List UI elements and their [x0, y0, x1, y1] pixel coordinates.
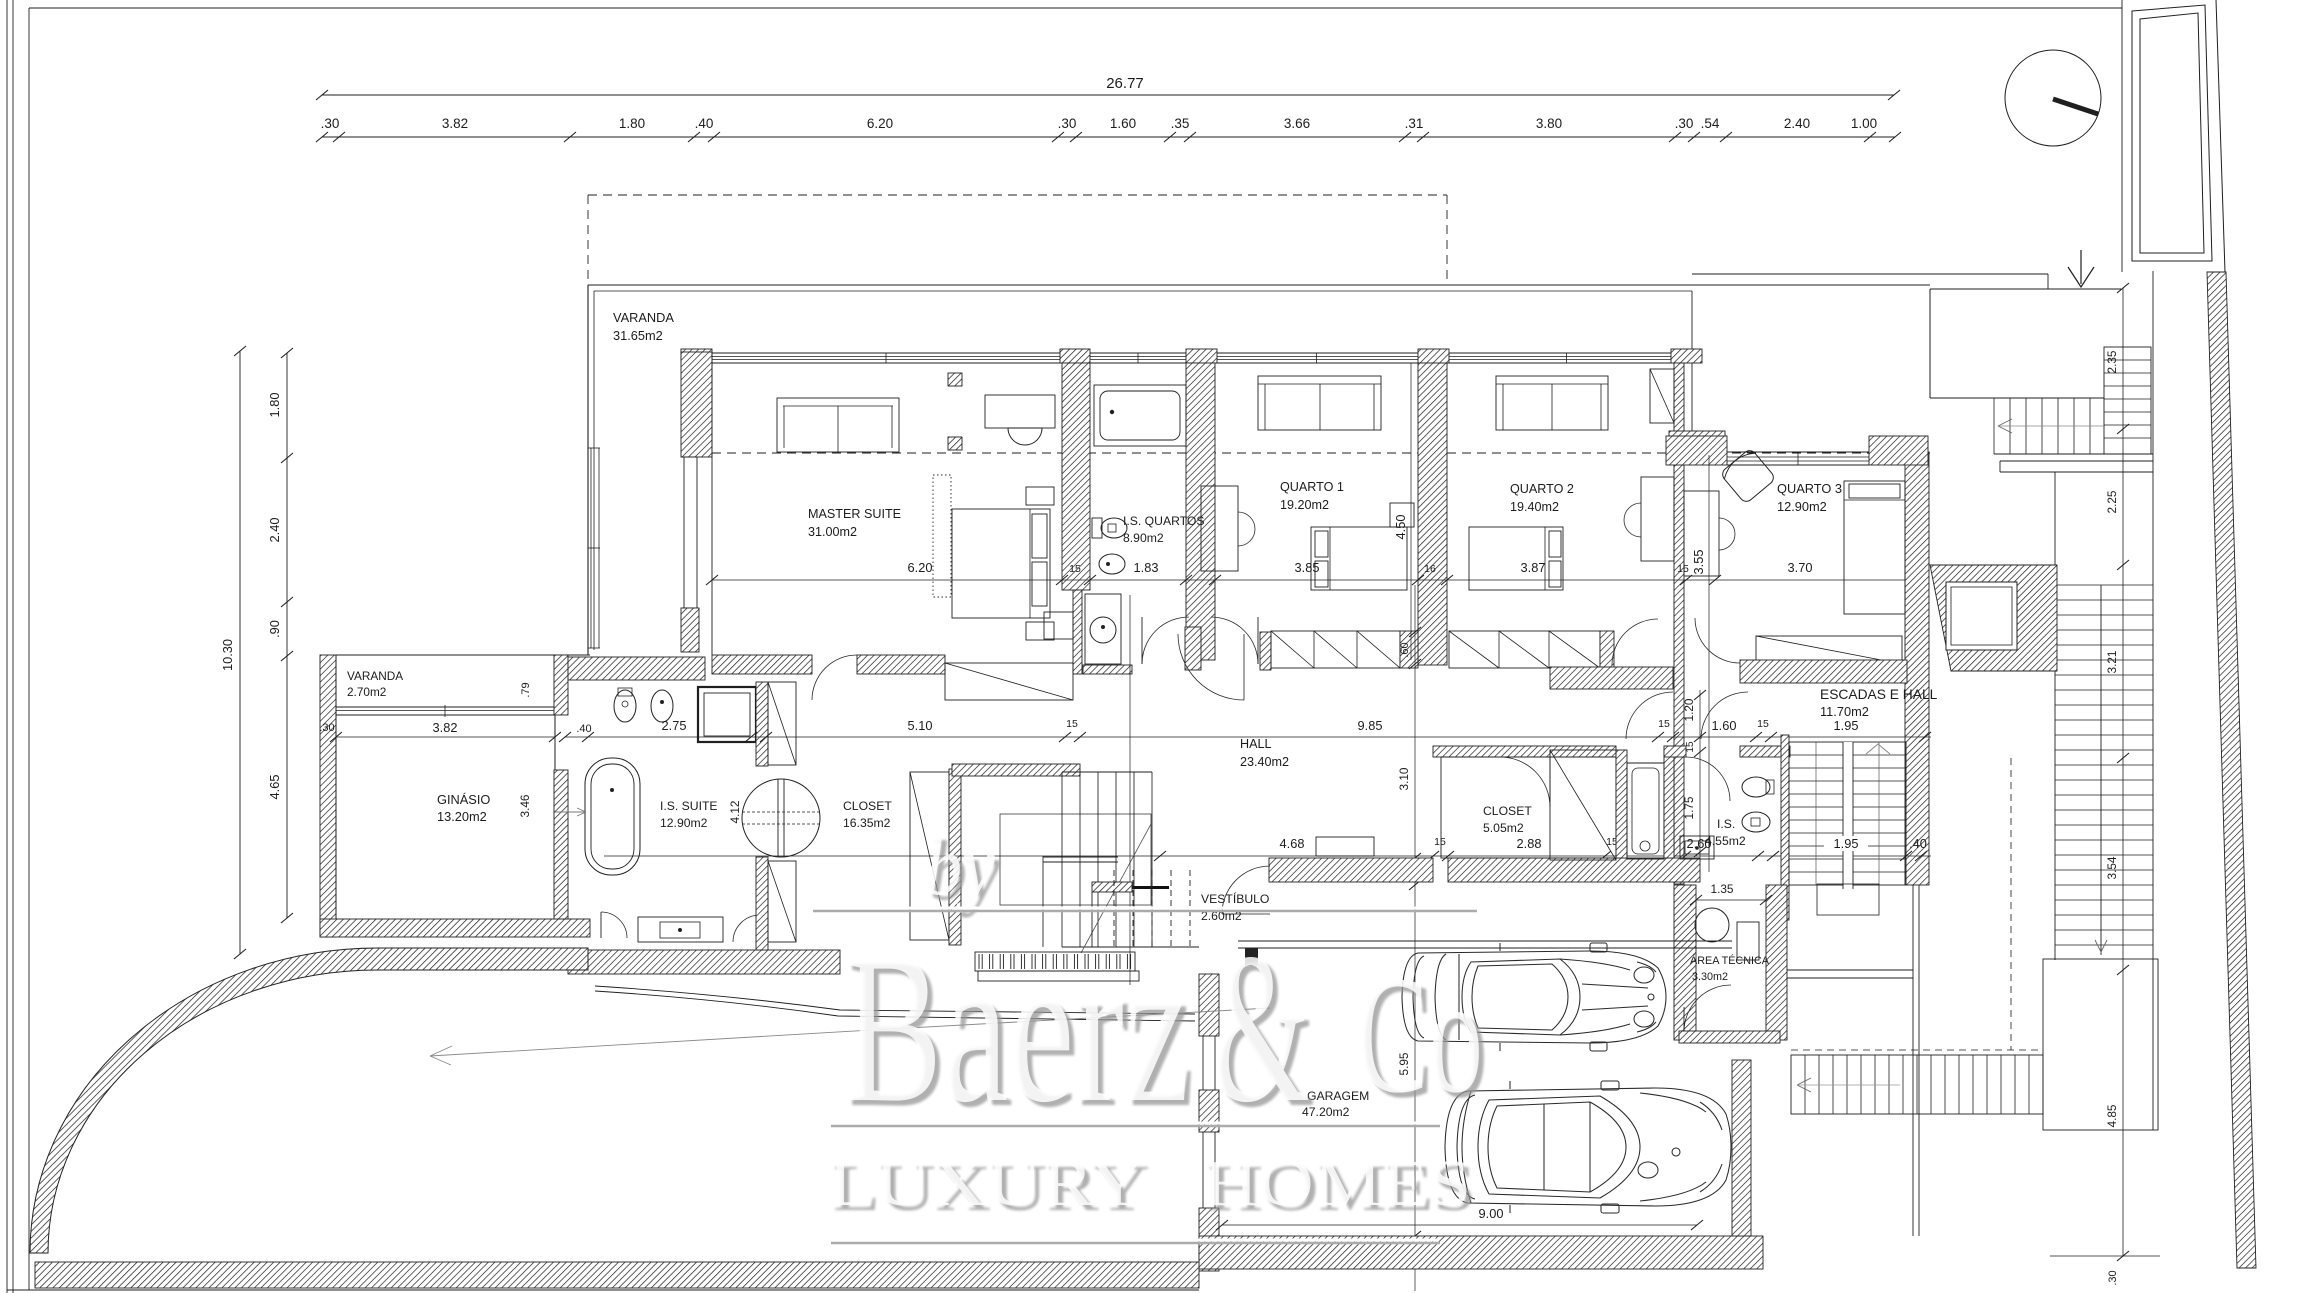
svg-text:15: 15: [1066, 718, 1078, 730]
svg-text:10.30: 10.30: [220, 639, 235, 671]
svg-text:1.60: 1.60: [1712, 718, 1737, 733]
svg-text:QUARTO 2: QUARTO 2: [1510, 482, 1574, 496]
svg-text:LUXURY: LUXURY: [828, 1147, 1145, 1220]
svg-text:1.80: 1.80: [267, 393, 282, 418]
svg-text:I.S. QUARTOS: I.S. QUARTOS: [1123, 514, 1205, 528]
svg-text:11.70m2: 11.70m2: [1820, 704, 1869, 719]
svg-text:15: 15: [1677, 563, 1689, 575]
svg-text:4.68: 4.68: [1280, 836, 1305, 851]
svg-text:6.20: 6.20: [867, 116, 893, 131]
svg-text:CLOSET: CLOSET: [1483, 804, 1532, 818]
svg-text:.40: .40: [576, 723, 591, 735]
svg-text:.30: .30: [321, 116, 340, 131]
svg-text:I.S. SUITE: I.S. SUITE: [660, 799, 718, 813]
svg-text:.30: .30: [2107, 1270, 2119, 1285]
svg-text:4.12: 4.12: [728, 801, 742, 824]
svg-text:.30: .30: [1058, 116, 1077, 131]
svg-text:23.40m2: 23.40m2: [1240, 755, 1289, 769]
svg-text:31.65m2: 31.65m2: [613, 328, 663, 343]
svg-text:3.30m2: 3.30m2: [1692, 971, 1728, 983]
svg-text:2.40: 2.40: [267, 518, 282, 543]
svg-text:.60: .60: [1399, 642, 1411, 657]
svg-text:16.35m2: 16.35m2: [843, 816, 891, 830]
svg-text:4.50: 4.50: [1393, 515, 1408, 540]
svg-text:15: 15: [1685, 741, 1696, 753]
svg-text:2.88: 2.88: [1517, 836, 1542, 851]
svg-text:.31: .31: [1405, 116, 1424, 131]
svg-text:1.60: 1.60: [1110, 116, 1136, 131]
svg-text:15: 15: [1658, 718, 1670, 730]
svg-text:1.95: 1.95: [1834, 836, 1859, 851]
svg-text:2.70m2: 2.70m2: [347, 685, 386, 699]
svg-text:2.75: 2.75: [662, 718, 687, 733]
svg-text:15: 15: [1069, 563, 1081, 575]
svg-text:.79: .79: [520, 682, 532, 697]
svg-text:12.90m2: 12.90m2: [660, 816, 708, 830]
svg-text:1.20: 1.20: [1682, 698, 1696, 721]
svg-text:3.54: 3.54: [2105, 856, 2119, 879]
svg-text:I.S.: I.S.: [1717, 817, 1735, 831]
svg-text:31.00m2: 31.00m2: [808, 525, 857, 539]
svg-text:3.85: 3.85: [1295, 560, 1320, 575]
svg-text:2.40: 2.40: [1784, 116, 1810, 131]
svg-text:19.40m2: 19.40m2: [1510, 500, 1559, 514]
svg-text:ESCADAS E HALL: ESCADAS E HALL: [1820, 687, 1938, 702]
svg-text:MASTER SUITE: MASTER SUITE: [808, 507, 901, 521]
svg-text:2.35: 2.35: [2105, 350, 2119, 373]
svg-text:13.20m2: 13.20m2: [437, 809, 487, 824]
svg-text:16: 16: [1424, 563, 1436, 575]
svg-text:5.05m2: 5.05m2: [1483, 821, 1524, 835]
svg-text:HOMES: HOMES: [1203, 1147, 1471, 1220]
svg-text:1.35: 1.35: [1711, 882, 1734, 896]
svg-text:2.25: 2.25: [2105, 490, 2119, 513]
svg-text:Co: Co: [1356, 942, 1483, 1128]
svg-text:6.20: 6.20: [908, 560, 933, 575]
svg-text:9.85: 9.85: [1358, 718, 1383, 733]
svg-text:Baerz: Baerz: [843, 908, 1190, 1147]
svg-text:8.90m2: 8.90m2: [1123, 531, 1164, 545]
svg-text:19.20m2: 19.20m2: [1280, 498, 1329, 512]
svg-text:15: 15: [1434, 836, 1446, 848]
svg-text:VESTÍBULO: VESTÍBULO: [1201, 891, 1269, 906]
svg-text:.35: .35: [1171, 116, 1190, 131]
svg-text:by: by: [925, 819, 995, 913]
svg-text:3.82: 3.82: [433, 720, 458, 735]
svg-text:3.55: 3.55: [1691, 550, 1706, 575]
svg-text:.54: .54: [1701, 116, 1720, 131]
svg-text:.40: .40: [1909, 836, 1927, 851]
svg-text:&: &: [1212, 908, 1310, 1147]
svg-text:QUARTO 1: QUARTO 1: [1280, 480, 1344, 494]
svg-text:12.90m2: 12.90m2: [1777, 499, 1827, 514]
svg-text:4.65: 4.65: [267, 775, 282, 800]
svg-text:1.75: 1.75: [1682, 796, 1696, 819]
svg-text:ÁREA TÉCNICA: ÁREA TÉCNICA: [1690, 954, 1770, 967]
svg-text:.30: .30: [1675, 116, 1694, 131]
svg-text:1.95: 1.95: [1834, 718, 1859, 733]
svg-text:.90: .90: [267, 620, 282, 638]
svg-text:1.80: 1.80: [619, 116, 645, 131]
svg-text:9.00: 9.00: [1479, 1206, 1504, 1221]
svg-text:3.46: 3.46: [518, 794, 532, 817]
svg-text:1.00: 1.00: [1851, 116, 1877, 131]
svg-text:VARANDA: VARANDA: [347, 669, 403, 683]
svg-text:5.10: 5.10: [908, 718, 933, 733]
svg-text:4.85: 4.85: [2105, 1104, 2119, 1127]
svg-text:3.66: 3.66: [1284, 116, 1310, 131]
svg-text:QUARTO 3: QUARTO 3: [1777, 481, 1842, 496]
svg-text:26.77: 26.77: [1106, 75, 1144, 92]
svg-text:1.83: 1.83: [1134, 560, 1159, 575]
svg-text:3.70: 3.70: [1788, 560, 1813, 575]
svg-text:GINÁSIO: GINÁSIO: [437, 792, 490, 807]
svg-text:VARANDA: VARANDA: [613, 310, 674, 325]
svg-text:CLOSET: CLOSET: [843, 799, 892, 813]
svg-text:HALL: HALL: [1240, 737, 1272, 751]
svg-text:.30: .30: [319, 722, 334, 734]
svg-text:3.10: 3.10: [1397, 767, 1411, 790]
svg-text:3.21: 3.21: [2105, 651, 2119, 674]
svg-text:3.87: 3.87: [1521, 560, 1546, 575]
svg-text:.40: .40: [695, 116, 714, 131]
svg-text:15: 15: [1757, 718, 1769, 730]
svg-text:3.80: 3.80: [1536, 116, 1562, 131]
svg-text:3.82: 3.82: [442, 116, 468, 131]
